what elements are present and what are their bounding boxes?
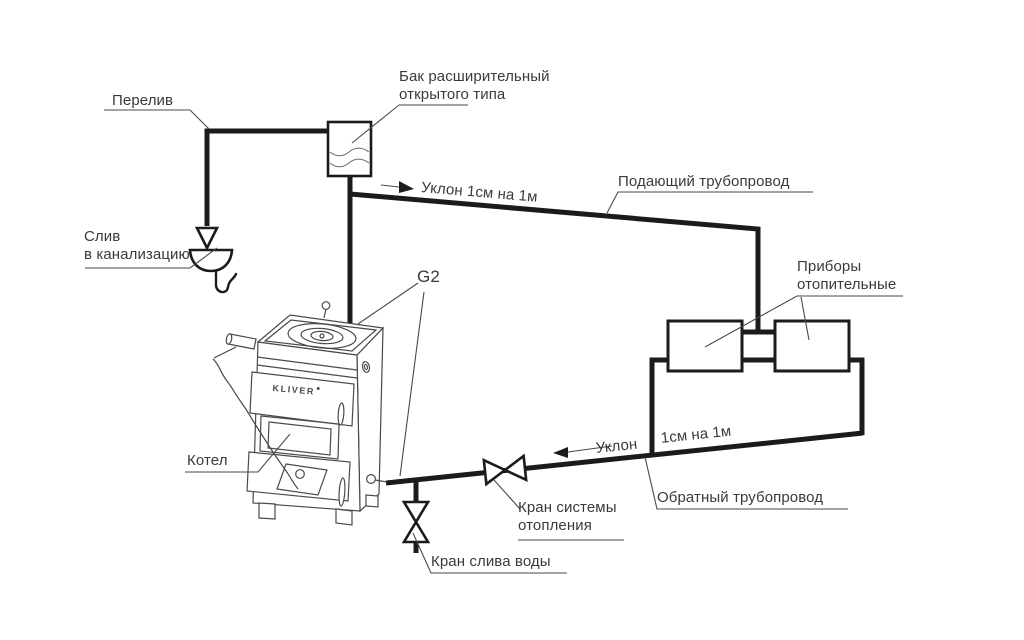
heating-system-schematic: Перелив Бак расширительный открытого тип… bbox=[0, 0, 1024, 640]
label-return-pipe: Обратный трубопровод bbox=[657, 489, 823, 507]
drain-funnel bbox=[190, 250, 236, 292]
sewer-trap bbox=[216, 271, 236, 292]
flow-arrow-supply-icon bbox=[381, 181, 414, 193]
label-overflow: Перелив bbox=[112, 92, 173, 110]
label-drain-sewer: Слив в канализацию bbox=[84, 228, 190, 264]
return-port bbox=[367, 475, 376, 484]
label-drain-valve: Кран слива воды bbox=[431, 553, 551, 571]
pipe-supply bbox=[350, 194, 758, 334]
system-valve-icon bbox=[484, 456, 526, 484]
pipe-overflow bbox=[197, 131, 328, 248]
expansion-tank bbox=[328, 122, 371, 176]
label-boiler-connection-g2: G2 bbox=[417, 268, 440, 286]
label-radiators: Приборы отопительные bbox=[797, 258, 896, 294]
drain-valve-icon bbox=[404, 502, 428, 542]
boiler-leg bbox=[366, 495, 378, 507]
label-boiler: Котел bbox=[187, 452, 228, 470]
damper-knob bbox=[322, 302, 330, 310]
label-expansion-tank: Бак расширительный открытого типа bbox=[399, 68, 550, 104]
radiator-left bbox=[668, 321, 742, 371]
label-system-valve: Кран системы отопления bbox=[518, 499, 617, 535]
boiler-leg bbox=[259, 503, 275, 519]
radiator-right bbox=[775, 321, 849, 371]
boiler-leg bbox=[336, 509, 352, 525]
boiler-illustration bbox=[213, 302, 387, 525]
label-supply-pipe: Подающий трубопровод bbox=[618, 173, 789, 191]
overflow-outlet-arrow-icon bbox=[197, 228, 217, 248]
